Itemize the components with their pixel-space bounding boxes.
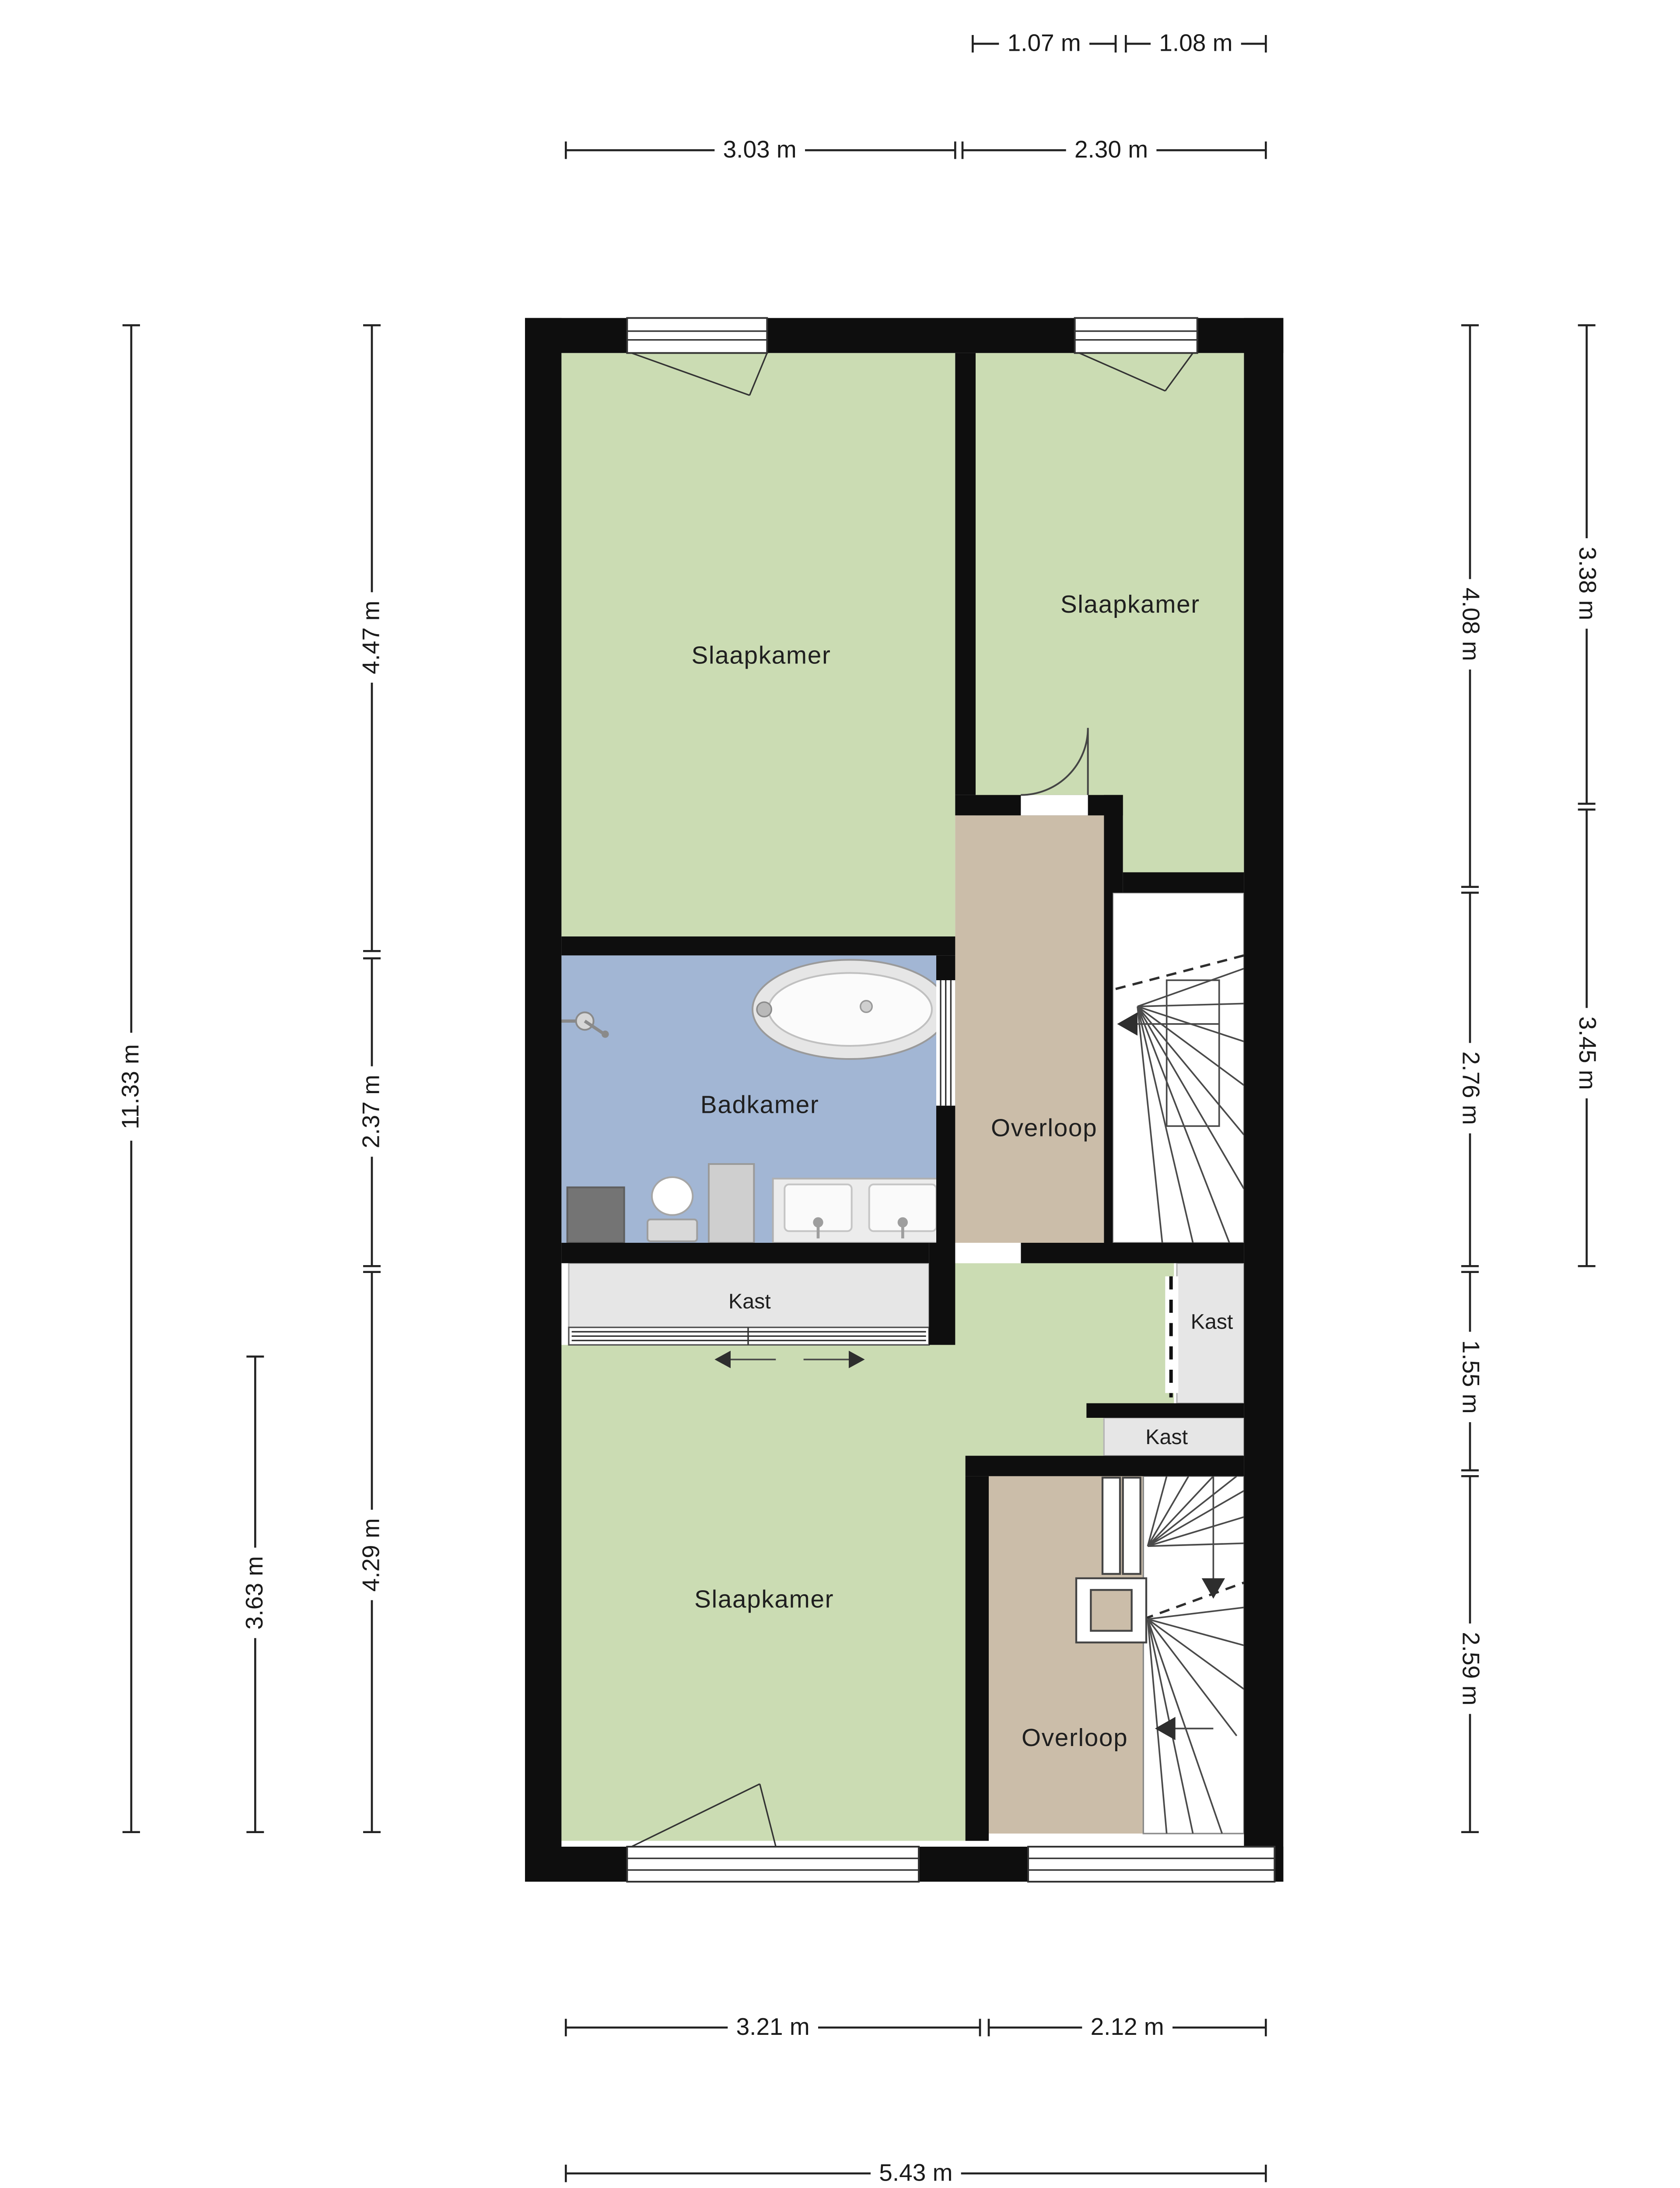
dim-top-inner-right: 1.08 m [1126,29,1266,59]
chimney-duct [1076,1578,1146,1643]
dim-right-upper: 4.08 m [1456,325,1485,887]
wall-closet-stub [929,1243,955,1345]
dim-bottom-total: 5.43 m [566,2159,1266,2188]
vanity-double-sink [773,1178,951,1243]
room-label-overloop-bottom: Overloop [1022,1724,1128,1752]
shower-base [567,1187,624,1243]
svg-text:3.45 m: 3.45 m [1574,1017,1601,1090]
svg-text:4.47 m: 4.47 m [357,601,385,674]
wall-connector [1104,795,1123,893]
svg-text:3.03 m: 3.03 m [723,136,797,163]
wall-bedroom-overloop-divider [966,1476,989,1841]
bathroom-cabinet [709,1164,754,1243]
room-label-kast-right: Kast [1191,1310,1233,1334]
door-opening-bedroom-bottom [958,1243,1021,1263]
floor-plan-page: Slaapkamer Slaapkamer Badkamer Overloop … [0,0,1680,2188]
dim-right-middle-outer: 3.45 m [1572,810,1601,1266]
bathtub-faucet-icon [757,1002,771,1017]
room-label-overloop-mid: Overloop [991,1115,1097,1142]
dim-right-lower: 1.55 m [1456,1272,1485,1470]
svg-text:4.29 m: 4.29 m [357,1518,385,1592]
room-label-slaapkamer-top-left: Slaapkamer [692,642,831,670]
svg-text:4.08 m: 4.08 m [1457,588,1484,661]
dim-bottom-left: 3.21 m [566,2013,980,2042]
dim-right-bottom: 2.59 m [1456,1476,1485,1832]
bathtub [752,960,948,1059]
dim-right-upper-outer: 3.38 m [1572,325,1601,803]
wall-stair-thin [1104,893,1113,1243]
svg-text:2.37 m: 2.37 m [357,1075,385,1148]
stairs-lower [1143,1476,1244,1834]
dim-right-middle: 2.76 m [1456,893,1485,1266]
wall-left [525,318,561,1882]
stairs-lower-area [1143,1476,1244,1834]
svg-text:2.30 m: 2.30 m [1074,136,1148,163]
dim-left-upper: 4.47 m [357,325,387,951]
faucet-right-icon [898,1217,908,1227]
dim-left-total: 11.33 m [117,325,146,1832]
svg-text:2.12 m: 2.12 m [1091,2013,1164,2040]
dim-left-lower: 4.29 m [357,1272,387,1832]
stairs-upper-area [1113,893,1244,1243]
dim-top-inner-left: 1.07 m [973,29,1116,59]
bathtub-drain-icon [861,1001,872,1013]
svg-text:1.55 m: 1.55 m [1457,1340,1484,1414]
wall-overloop-bottom [1021,1243,1244,1263]
svg-text:2.76 m: 2.76 m [1457,1052,1484,1125]
floor-plan: Slaapkamer Slaapkamer Badkamer Overloop … [0,0,1680,2188]
stairs-upper [1113,893,1244,1243]
closet-left-sliding-track [569,1327,929,1345]
svg-text:11.33 m: 11.33 m [117,1044,144,1129]
wall-bedroom-tr-bottom [1123,872,1244,893]
wall-above-lower-overloop [966,1456,1244,1476]
svg-text:3.38 m: 3.38 m [1574,547,1601,620]
room-label-slaapkamer-bottom: Slaapkamer [694,1585,834,1613]
svg-text:5.43 m: 5.43 m [879,2159,952,2186]
dim-left-middle: 2.37 m [357,958,387,1266]
svg-text:3.21 m: 3.21 m [736,2013,810,2040]
room-label-slaapkamer-top-right: Slaapkamer [1060,591,1200,618]
wall-badkamer-top [561,936,955,955]
wall-badkamer-bottom [561,1243,929,1263]
room-label-kast-lower: Kast [1145,1425,1188,1449]
room-label-badkamer: Badkamer [700,1091,819,1119]
door-opening-bedroom-tr [1021,795,1088,816]
room-overloop-mid [955,815,1104,1243]
svg-text:1.08 m: 1.08 m [1159,29,1232,56]
window-bottom-right [1028,1847,1274,1882]
faucet-left-icon [813,1217,823,1227]
wall-divider-bedrooms [955,353,976,795]
svg-text:2.59 m: 2.59 m [1457,1632,1484,1705]
dim-left-lower-inner: 3.63 m [241,1357,270,1832]
svg-text:3.63 m: 3.63 m [241,1556,268,1630]
dim-bottom-right: 2.12 m [989,2013,1266,2042]
wall-right [1244,318,1283,1882]
wall-closet-right-bottom [1086,1403,1244,1418]
dim-top-right: 2.30 m [962,136,1266,165]
svg-text:1.07 m: 1.07 m [1008,29,1081,56]
dim-top-left: 3.03 m [566,136,955,165]
room-label-kast-left: Kast [728,1290,771,1313]
